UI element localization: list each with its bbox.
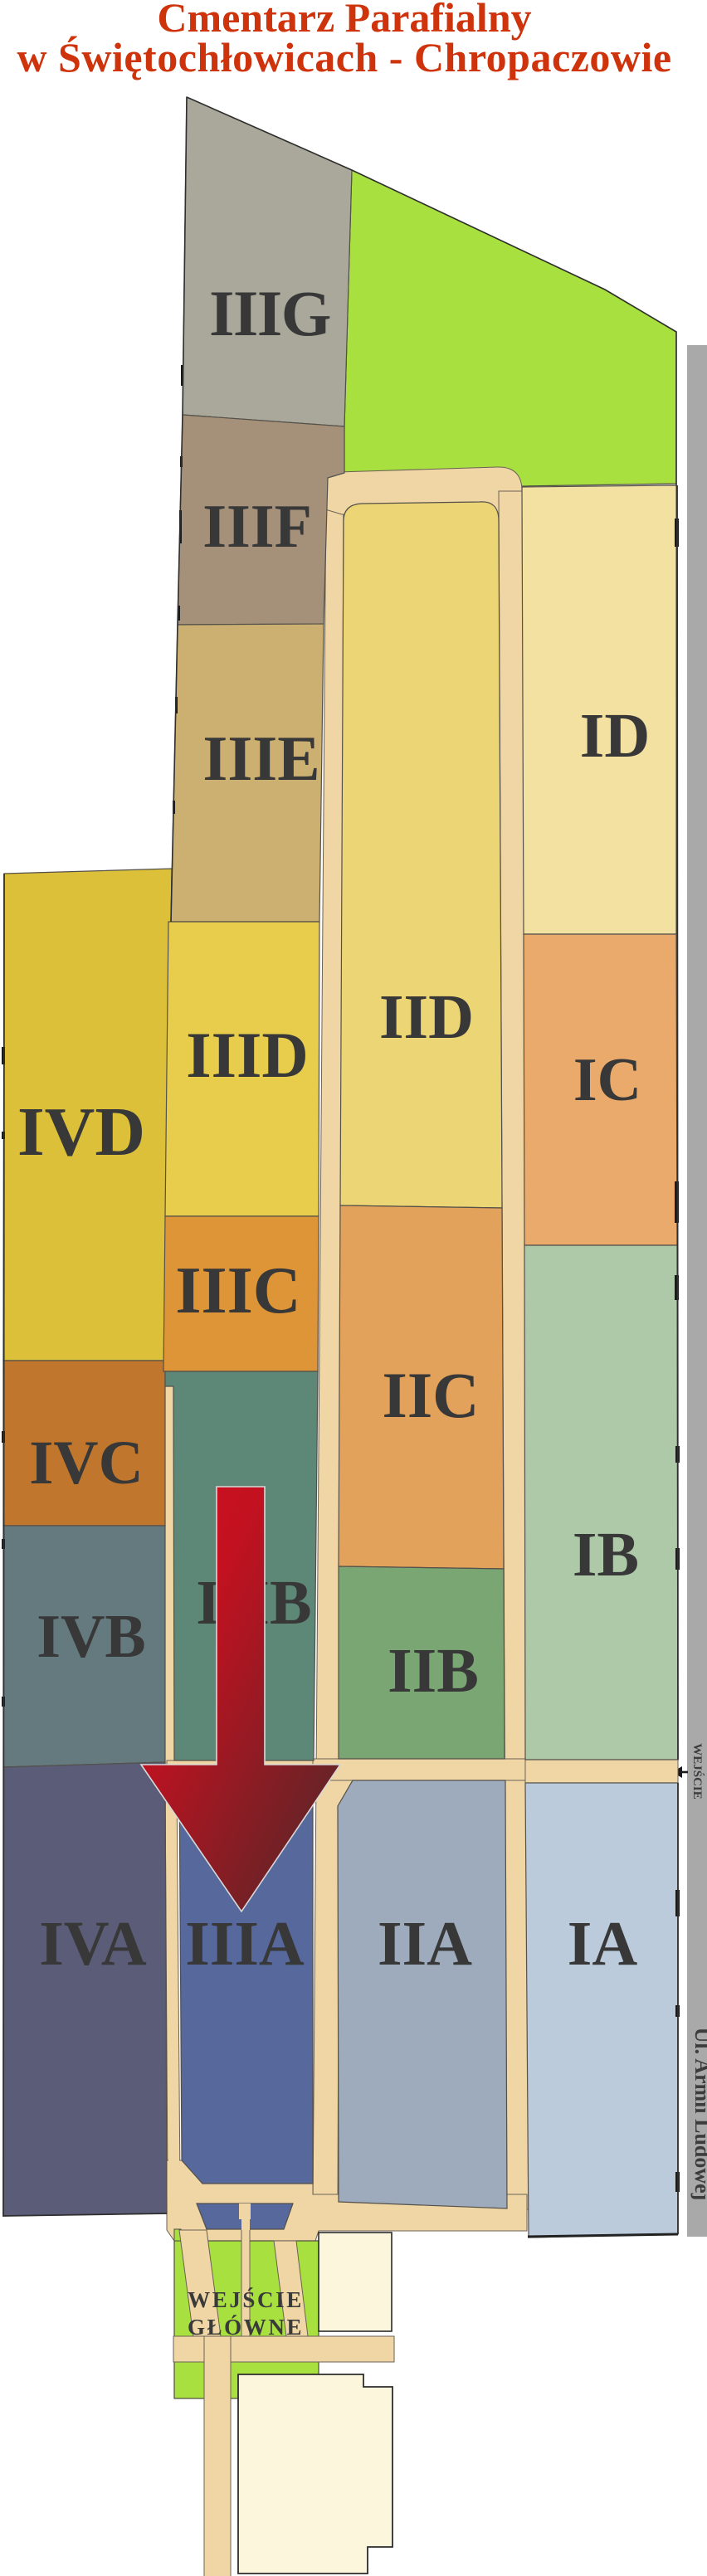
svg-text:IIA: IIA — [378, 1909, 472, 1979]
svg-text:ID: ID — [580, 701, 650, 771]
svg-text:WEJŚCIE: WEJŚCIE — [188, 2287, 304, 2312]
svg-text:IVB: IVB — [37, 1603, 146, 1671]
svg-text:IC: IC — [573, 1046, 641, 1114]
svg-text:IVC: IVC — [29, 1429, 144, 1497]
svg-text:IIIG: IIIG — [209, 277, 330, 349]
svg-text:IIIF: IIIF — [202, 493, 312, 561]
svg-text:IA: IA — [568, 1909, 638, 1979]
svg-text:IVA: IVA — [39, 1909, 147, 1979]
svg-text:IIID: IIID — [186, 1019, 308, 1091]
svg-text:IB: IB — [573, 1520, 639, 1590]
svg-text:GŁÓWNE: GŁÓWNE — [188, 2315, 304, 2340]
svg-text:IIC: IIC — [382, 1359, 479, 1431]
svg-text:IVD: IVD — [17, 1093, 145, 1171]
svg-text:Ul. Armii Ludowej: Ul. Armii Ludowej — [690, 2028, 707, 2201]
svg-text:IID: IID — [379, 982, 474, 1052]
svg-text:IIIC: IIIC — [175, 1254, 300, 1327]
svg-text:IIIA: IIIA — [185, 1909, 305, 1979]
svg-text:IIB: IIB — [388, 1636, 479, 1706]
svg-text:w Świętochłowicach - Chropaczo: w Świętochłowicach - Chropaczowie — [17, 34, 671, 80]
svg-text:WEJŚCIE: WEJŚCIE — [690, 1743, 705, 1799]
svg-text:IIIE: IIIE — [202, 723, 319, 794]
